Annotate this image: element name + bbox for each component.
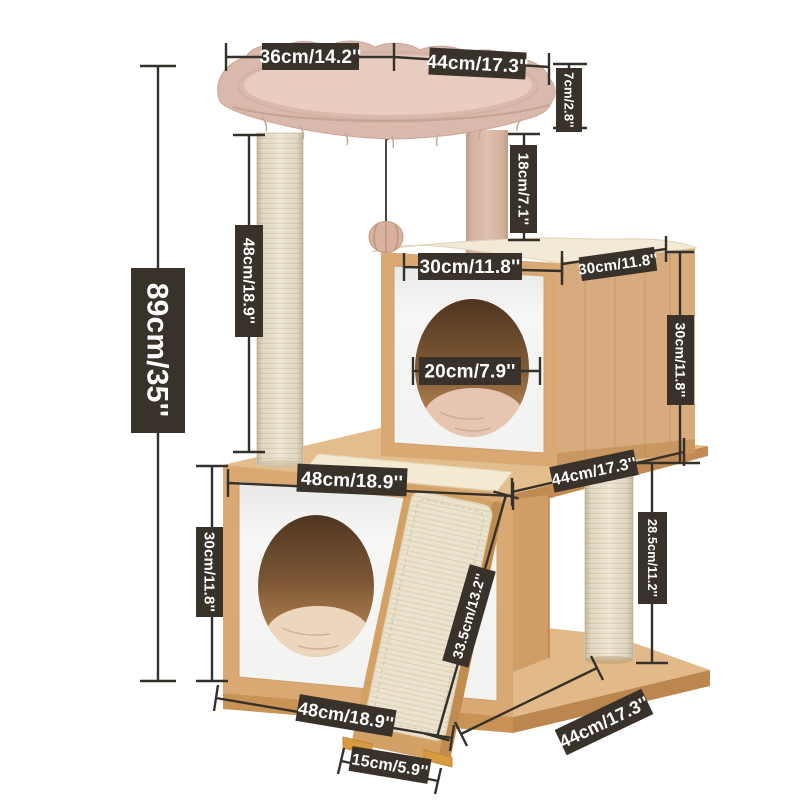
dim-label-bed-top-depth: 44cm/17.3'' (426, 47, 529, 79)
diagram-canvas: 36cm/14.2'' 44cm/17.3'' 7cm/2.8'' 18cm/7… (0, 0, 800, 800)
right-post-shading (466, 130, 508, 258)
lower-post-shading (585, 472, 633, 660)
dim-label-bed-rim-height: 7cm/2.8'' (556, 68, 582, 132)
upper-post-height-label: 18cm/7.1'' (514, 153, 531, 226)
product-dimension-diagram: 36cm/14.2'' 44cm/17.3'' 7cm/2.8'' 18cm/7… (0, 0, 800, 800)
upper-right-post (466, 130, 508, 258)
total-height-label: 89cm/35'' (141, 283, 174, 418)
left-post-shading (257, 133, 303, 465)
lower-box-height-label: 30cm/11.8'' (200, 532, 217, 612)
dim-label-bed-top-width: 36cm/14.2'' (259, 43, 361, 70)
dim-label-upper-post-height: 18cm/7.1'' (510, 145, 537, 233)
bed-rim-height-label: 7cm/2.8'' (561, 72, 576, 128)
dim-label-mid-level-width: 48cm/18.9'' (296, 464, 407, 497)
mid-box-height-label: 30cm/11.8'' (673, 322, 689, 397)
lower-right-scratching-post (585, 472, 633, 664)
dim-label-mid-box-width: 30cm/11.8'' (418, 253, 522, 280)
left-post-height-label: 48cm/18.9'' (239, 238, 256, 324)
hanging-ball-toy (369, 134, 403, 253)
dim-label-lower-box-height: 30cm/11.8'' (196, 527, 223, 617)
dim-label-mid-box-height: 30cm/11.8'' (667, 315, 694, 405)
dim-label-mid-box-hole: 20cm/7.9'' (419, 357, 521, 385)
dim-label-total-height: 89cm/35'' (131, 268, 185, 433)
mid-level-width-label: 48cm/18.9'' (300, 468, 403, 493)
mid-box-width-label: 30cm/11.8'' (419, 257, 520, 278)
dim-label-left-post-height: 48cm/18.9'' (235, 225, 263, 337)
left-post-base-shadow (257, 460, 303, 468)
left-scratching-post (257, 133, 303, 468)
bed-top-width-label: 36cm/14.2'' (259, 47, 361, 68)
mid-box-hole-label: 20cm/7.9'' (424, 362, 515, 383)
dim-label-lower-post-height: 28.5cm/11.2'' (638, 512, 667, 604)
lower-post-height-label: 28.5cm/11.2'' (645, 519, 659, 597)
